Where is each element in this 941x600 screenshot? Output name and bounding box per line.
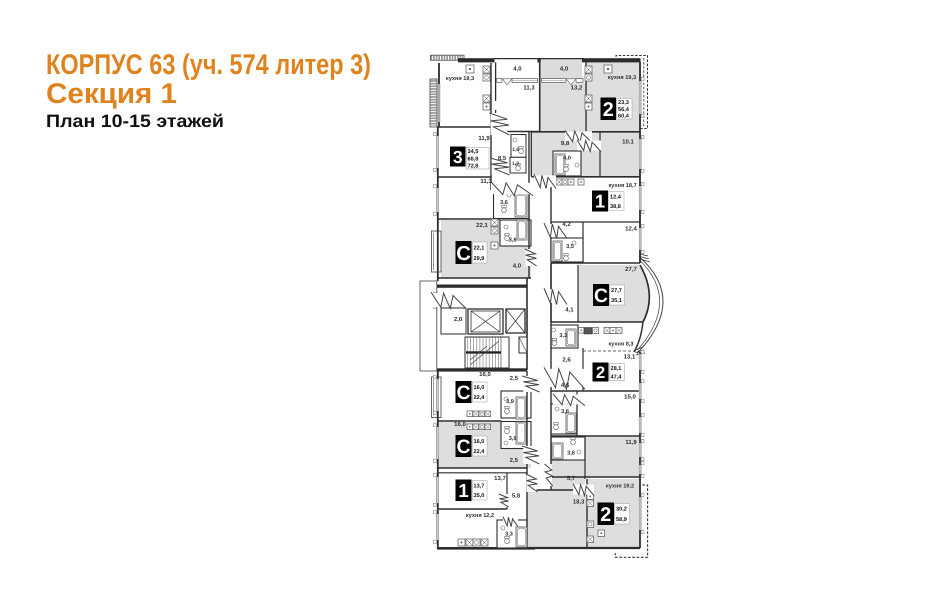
svg-text:3,8: 3,8 [509,238,517,244]
svg-text:13,7: 13,7 [494,475,506,482]
svg-text:2: 2 [603,99,614,121]
svg-text:2: 2 [600,504,611,526]
svg-text:5,8: 5,8 [512,492,521,499]
svg-text:1,6: 1,6 [512,147,519,153]
svg-text:4,0: 4,0 [513,65,522,72]
svg-text:12,4: 12,4 [610,194,622,200]
svg-text:11,3: 11,3 [523,85,535,92]
svg-text:47,4: 47,4 [611,374,623,380]
svg-text:13,7: 13,7 [474,483,485,489]
svg-text:кухня 18,7: кухня 18,7 [609,183,637,189]
svg-text:13,2: 13,2 [571,85,583,92]
svg-text:4,0: 4,0 [513,263,522,270]
svg-text:72,8: 72,8 [468,163,479,169]
svg-text:28,1: 28,1 [611,366,622,372]
svg-text:11,3: 11,3 [480,178,492,185]
svg-text:кухня 12,2: кухня 12,2 [466,513,494,519]
svg-text:16,0: 16,0 [454,421,466,428]
svg-text:2,5: 2,5 [510,457,519,464]
svg-text:29,9: 29,9 [474,256,485,262]
svg-text:35,1: 35,1 [611,298,622,304]
svg-text:кухня 19,3: кухня 19,3 [446,76,474,82]
svg-text:38,8: 38,8 [610,204,621,210]
svg-text:3,6: 3,6 [500,200,508,206]
svg-text:58,9: 58,9 [616,517,627,523]
svg-text:22,1: 22,1 [474,245,485,251]
svg-text:3,8: 3,8 [567,451,575,457]
svg-text:34,5: 34,5 [468,149,479,155]
svg-text:11,9: 11,9 [478,135,490,142]
svg-text:16,0: 16,0 [474,385,485,391]
svg-text:22,1: 22,1 [476,222,488,229]
svg-text:68,8: 68,8 [468,156,479,162]
svg-text:13,1: 13,1 [624,353,636,360]
svg-text:1,3: 1,3 [512,161,519,167]
svg-text:2,6: 2,6 [562,357,571,364]
svg-text:4,0: 4,0 [563,156,571,162]
svg-text:12,4: 12,4 [625,226,637,233]
svg-text:22,4: 22,4 [474,395,486,401]
svg-text:3,8: 3,8 [561,409,569,415]
svg-text:30,2: 30,2 [616,507,627,513]
svg-text:2,0: 2,0 [454,316,463,323]
svg-text:15,0: 15,0 [624,393,636,400]
svg-text:3,9: 3,9 [509,436,517,442]
svg-text:кухня 19,3: кухня 19,3 [608,75,636,81]
svg-text:3,5: 3,5 [566,244,574,250]
svg-text:2,5: 2,5 [510,375,519,382]
svg-text:4,1: 4,1 [565,307,574,314]
svg-text:27,7: 27,7 [611,288,622,294]
svg-text:9,8: 9,8 [561,140,570,147]
svg-text:1: 1 [458,481,469,502]
svg-text:16,0: 16,0 [474,439,485,445]
svg-text:Секция 1: Секция 1 [46,78,177,110]
svg-text:С: С [594,285,608,307]
svg-text:56,4: 56,4 [618,107,630,113]
svg-text:60,4: 60,4 [618,114,630,120]
svg-text:3: 3 [453,147,463,167]
svg-text:10,1: 10,1 [622,139,634,146]
svg-text:22,4: 22,4 [474,449,486,455]
svg-text:4,6: 4,6 [561,382,570,389]
svg-text:кухня 19,2: кухня 19,2 [606,484,634,490]
svg-text:16,0: 16,0 [479,371,491,378]
svg-text:С: С [457,382,471,404]
svg-text:С: С [456,243,471,265]
svg-text:План 10-15 этажей: План 10-15 этажей [46,111,224,131]
svg-text:кухня 8,3: кухня 8,3 [608,342,633,348]
svg-text:23,3: 23,3 [618,100,629,106]
svg-text:27,7: 27,7 [625,266,637,273]
svg-text:С: С [457,436,471,458]
svg-text:4,2: 4,2 [562,221,571,228]
svg-text:1: 1 [595,191,605,212]
svg-text:3,3: 3,3 [505,532,513,538]
svg-text:8,5: 8,5 [498,155,507,162]
svg-text:4,0: 4,0 [560,65,569,72]
svg-text:11,9: 11,9 [625,439,637,446]
svg-text:18,3: 18,3 [573,498,585,505]
svg-text:3,9: 3,9 [506,399,514,405]
svg-text:5,7: 5,7 [567,475,576,482]
svg-text:35,0: 35,0 [474,493,485,499]
svg-text:3,3: 3,3 [559,333,567,339]
svg-text:КОРПУС 63 (уч. 574 литер 3): КОРПУС 63 (уч. 574 литер 3) [46,49,371,81]
svg-text:2: 2 [596,363,605,382]
